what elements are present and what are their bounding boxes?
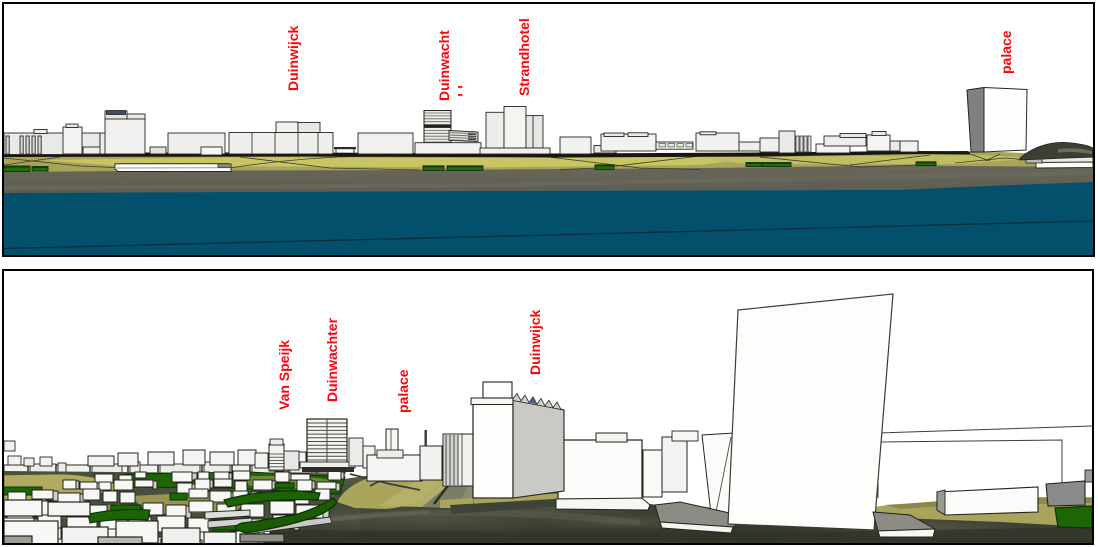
svg-text:Duinwijck: Duinwijck: [285, 25, 301, 91]
svg-text:Duinwijck: Duinwijck: [527, 309, 543, 375]
svg-text:Strandhotel: Strandhotel: [516, 18, 532, 96]
svg-text:Duinwachter: Duinwachter: [324, 317, 340, 402]
svg-text:palace: palace: [395, 369, 411, 413]
svg-text:Van Speijk: Van Speijk: [276, 340, 292, 410]
svg-text:palace: palace: [998, 30, 1014, 74]
svg-text:Duinwacht: Duinwacht: [436, 30, 452, 101]
